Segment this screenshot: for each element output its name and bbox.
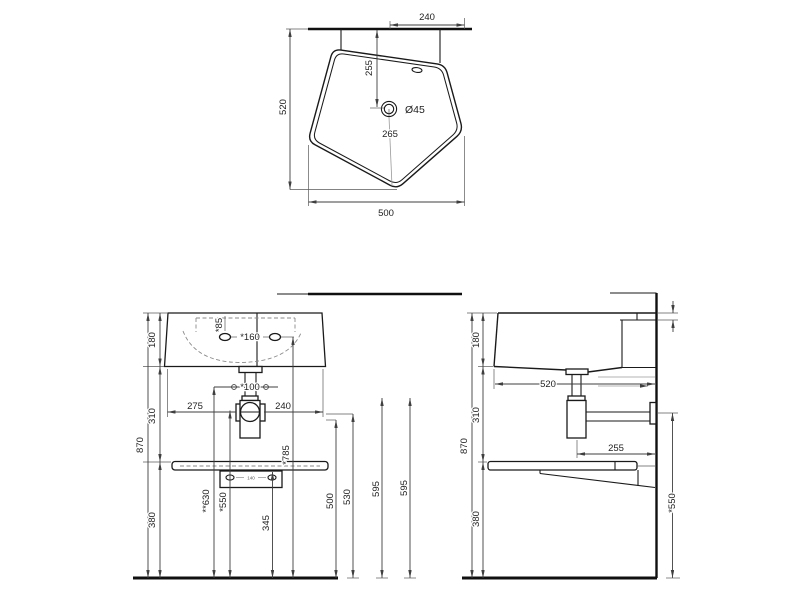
dim-trap-height-front: *550 [218,492,229,512]
dim-outlet-height-b: 530 [342,489,353,505]
dim-supply-spacing: *100 [240,382,260,393]
dim-ref-height-a: 595 [371,481,382,497]
top-view-dimensions: 240 255 Ø45 265 520 500 [278,12,465,219]
dim-depth-side: 520 [540,379,556,390]
dim-trap-height-side: *550 [667,493,678,513]
dim-supply-height: **630 [201,489,212,512]
tap-hole-right [270,334,281,341]
siphon-side [566,369,656,438]
top-view: 240 255 Ø45 265 520 500 [278,12,472,219]
shelf-side [488,462,656,488]
tap-hole-left [220,334,231,341]
dim-total-height-side: 870 [459,438,470,454]
dim-trap-to-right: 240 [275,401,291,412]
dim-drain-diameter: Ø45 [405,104,425,116]
drain-centerline [389,117,392,186]
dim-ref-height-b: 595 [399,480,410,496]
side-view-dimensions: 870 180 310 380 520 255 *550 [459,301,680,578]
dim-depth: 520 [278,99,289,115]
dim-drain-from-wall: 255 [364,60,375,76]
washbasin-technical-drawing: 240 255 Ø45 265 520 500 [0,0,800,600]
side-view: 870 180 310 380 520 255 *550 [459,293,680,578]
basin-outline-inner [314,54,457,183]
dim-left-to-trap: 275 [187,401,203,412]
basin-outline-outer [310,50,462,187]
dim-hole-offset: *85 [214,318,225,332]
dim-trap-to-wall: 255 [608,443,624,454]
dim-basin-to-shelf-side: 310 [471,407,482,423]
dim-bracket-height: 345 [261,515,272,531]
overflow-slot [412,67,423,73]
dim-outlet-height-a: 500 [325,493,336,509]
basin-side-outline [494,313,656,372]
front-view: 140 870 180 310 380 *85 *160 [133,294,462,578]
dim-rim-height: *785 [281,445,292,465]
dim-basin-to-shelf-front: 310 [147,408,158,424]
dim-basin-height-side: 180 [471,332,482,348]
dim-drain-from-front: 265 [382,129,398,140]
dim-bracket-hole-spacing: 140 [247,476,255,481]
dim-total-height-front: 870 [135,437,146,453]
dim-hole-spacing: *160 [240,332,260,343]
dim-shelf-to-floor-side: 380 [471,511,482,527]
siphon-front [236,367,265,439]
dim-basin-height-front: 180 [147,332,158,348]
dim-shelf-to-floor-front: 380 [147,512,158,528]
dim-width: 500 [378,208,394,219]
technical-drawing-page: 240 255 Ø45 265 520 500 [0,0,800,600]
dim-faucet-offset: 240 [419,12,435,23]
